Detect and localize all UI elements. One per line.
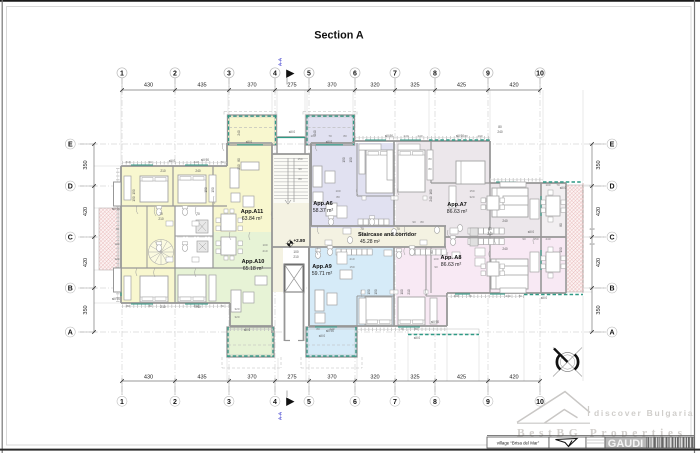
svg-text:240: 240 (497, 130, 503, 134)
svg-text:320: 320 (370, 375, 379, 381)
svg-text:80: 80 (237, 158, 241, 162)
svg-text:430: 430 (144, 375, 153, 381)
svg-text:sill 90: sill 90 (326, 329, 334, 333)
svg-text:240: 240 (195, 305, 201, 309)
svg-text:210: 210 (293, 255, 299, 259)
svg-text:1: 1 (120, 70, 124, 77)
svg-text:E: E (68, 142, 73, 149)
svg-text:160: 160 (429, 189, 433, 195)
svg-text:325: 325 (410, 83, 419, 89)
svg-text:240: 240 (403, 134, 408, 138)
svg-text:sill 90: sill 90 (112, 207, 120, 211)
svg-text:sill 0: sill 0 (246, 140, 253, 144)
svg-text:430: 430 (144, 83, 153, 89)
svg-text:100: 100 (433, 257, 438, 261)
svg-text:86.63 m²: 86.63 m² (447, 209, 468, 215)
svg-text:80: 80 (336, 195, 340, 199)
svg-text:58.37 m²: 58.37 m² (313, 208, 334, 214)
svg-text:80: 80 (430, 250, 434, 254)
svg-text:240: 240 (237, 130, 241, 136)
svg-text:150: 150 (469, 189, 474, 193)
svg-text:370: 370 (247, 83, 256, 89)
svg-text:150: 150 (533, 237, 538, 241)
svg-text:A-A: A-A (278, 57, 283, 66)
svg-text:9: 9 (486, 399, 490, 406)
svg-text:9: 9 (486, 70, 490, 77)
svg-text:8: 8 (433, 70, 437, 77)
svg-text:80: 80 (428, 157, 432, 161)
svg-text:sill 0: sill 0 (289, 130, 296, 134)
svg-text:80: 80 (559, 223, 563, 227)
svg-text:240: 240 (502, 247, 508, 251)
svg-text:8: 8 (433, 399, 437, 406)
svg-text:App.A10: App.A10 (242, 259, 265, 265)
svg-text:10: 10 (536, 70, 544, 77)
svg-text:86.63 m²: 86.63 m² (441, 262, 462, 268)
svg-text:2: 2 (173, 70, 177, 77)
svg-text:210: 210 (395, 232, 401, 236)
svg-text:370: 370 (247, 375, 256, 381)
svg-text:420: 420 (83, 207, 89, 216)
svg-text:150: 150 (349, 157, 353, 163)
svg-text:70: 70 (468, 294, 472, 298)
svg-text:80: 80 (420, 220, 424, 224)
svg-text:240: 240 (195, 169, 201, 173)
svg-text:275: 275 (287, 375, 296, 381)
svg-text:350: 350 (83, 160, 89, 169)
svg-text:A: A (609, 330, 614, 337)
svg-text:Staircase and corridor: Staircase and corridor (358, 232, 417, 238)
svg-text:240: 240 (429, 196, 433, 202)
svg-text:100: 100 (114, 242, 119, 246)
svg-text:240: 240 (502, 219, 508, 223)
svg-text:80: 80 (343, 134, 347, 138)
svg-text:sill 0: sill 0 (541, 296, 548, 300)
svg-text:C: C (609, 235, 614, 242)
svg-text:3: 3 (227, 70, 231, 77)
svg-text:70: 70 (196, 212, 200, 216)
svg-text:70: 70 (159, 212, 163, 216)
svg-text:4: 4 (273, 70, 277, 77)
svg-text:5: 5 (307, 399, 311, 406)
svg-text:C: C (68, 235, 73, 242)
svg-text:100: 100 (453, 294, 458, 298)
svg-text:10: 10 (536, 399, 544, 406)
svg-text:100: 100 (400, 289, 404, 295)
svg-text:150: 150 (204, 187, 208, 193)
svg-text:sill 0: sill 0 (319, 334, 326, 338)
svg-text:420: 420 (596, 207, 602, 216)
svg-text:70: 70 (328, 134, 332, 138)
svg-text:App.A11: App.A11 (241, 209, 263, 215)
svg-text:sill 0: sill 0 (414, 336, 421, 340)
svg-text:210: 210 (359, 232, 365, 236)
svg-text:B: B (68, 286, 73, 293)
svg-text:7: 7 (393, 70, 397, 77)
svg-text:150: 150 (559, 247, 563, 253)
svg-text:210: 210 (160, 305, 166, 309)
svg-text:D: D (68, 184, 73, 191)
svg-text:320: 320 (234, 307, 239, 311)
svg-text:425: 425 (457, 375, 466, 381)
svg-text:App.A7: App.A7 (447, 202, 467, 208)
svg-text:sill 0: sill 0 (528, 230, 535, 234)
svg-text:sill 0: sill 0 (326, 140, 333, 144)
svg-text:63.84 m²: 63.84 m² (242, 216, 263, 222)
svg-text:7: 7 (393, 399, 397, 406)
svg-text:discover Bulgaria: discover Bulgaria (594, 408, 694, 418)
svg-text:150: 150 (297, 157, 302, 161)
svg-text:App.A6: App.A6 (313, 201, 333, 207)
svg-text:435: 435 (197, 375, 206, 381)
svg-text:325: 325 (410, 375, 419, 381)
svg-text:90: 90 (434, 265, 438, 269)
svg-text:70: 70 (220, 304, 224, 308)
svg-text:GAUDI: GAUDI (608, 438, 643, 450)
svg-text:70: 70 (400, 327, 404, 331)
svg-text:435: 435 (197, 83, 206, 89)
svg-text:70: 70 (360, 227, 364, 231)
svg-text:80: 80 (498, 125, 502, 129)
svg-text:Section A: Section A (314, 30, 364, 42)
svg-text:150: 150 (349, 265, 354, 269)
svg-text:275: 275 (287, 83, 296, 89)
svg-text:sill 90: sill 90 (385, 134, 393, 138)
svg-text:150: 150 (132, 189, 136, 195)
svg-text:210: 210 (349, 257, 354, 261)
svg-text:210: 210 (262, 249, 267, 253)
svg-text:6: 6 (353, 399, 357, 406)
svg-text:100: 100 (262, 243, 267, 247)
svg-text:90: 90 (412, 220, 416, 224)
svg-text:1: 1 (120, 399, 124, 406)
svg-text:210: 210 (407, 289, 411, 295)
svg-text:A: A (68, 330, 73, 337)
svg-text:5: 5 (307, 70, 311, 77)
svg-text:80: 80 (414, 327, 418, 331)
svg-text:100: 100 (545, 183, 550, 187)
svg-text:320: 320 (370, 83, 379, 89)
svg-text:sill 0: sill 0 (169, 159, 176, 163)
svg-text:150: 150 (367, 289, 371, 295)
svg-text:420: 420 (509, 83, 518, 89)
svg-text:240: 240 (193, 160, 198, 164)
svg-text:100: 100 (477, 134, 482, 138)
svg-text:350: 350 (596, 160, 602, 169)
svg-text:3: 3 (227, 399, 231, 406)
svg-text:240: 240 (417, 134, 422, 138)
svg-text:90: 90 (522, 237, 526, 241)
svg-text:425: 425 (457, 83, 466, 89)
svg-text:70: 70 (518, 294, 522, 298)
svg-text:sill 90: sill 90 (201, 158, 209, 162)
svg-text:370: 370 (327, 83, 336, 89)
svg-text:150: 150 (374, 289, 378, 295)
svg-text:sill 90: sill 90 (456, 134, 464, 138)
svg-text:70: 70 (396, 227, 400, 231)
svg-text:App. A8: App. A8 (441, 255, 462, 261)
svg-text:village “Brisa del Mar”: village “Brisa del Mar” (497, 441, 540, 446)
svg-text:210: 210 (160, 169, 166, 173)
svg-text:E: E (610, 142, 615, 149)
svg-text:420: 420 (83, 258, 89, 267)
svg-text:+2.80: +2.80 (294, 238, 306, 243)
svg-text:320: 320 (114, 257, 119, 261)
svg-text:240: 240 (313, 130, 317, 136)
svg-text:B: B (609, 286, 614, 293)
svg-text:150: 150 (132, 196, 136, 202)
svg-text:D: D (609, 184, 614, 191)
svg-text:80: 80 (126, 304, 130, 308)
svg-text:210: 210 (125, 160, 130, 164)
svg-text:sill 0: sill 0 (560, 186, 567, 190)
svg-text:350: 350 (83, 305, 89, 314)
svg-text:150: 150 (211, 187, 215, 193)
svg-text:80: 80 (298, 177, 302, 181)
svg-text:App.A9: App.A9 (312, 264, 332, 270)
svg-text:65.18 m²: 65.18 m² (243, 266, 264, 272)
svg-text:420: 420 (596, 258, 602, 267)
svg-text:90: 90 (298, 167, 302, 171)
svg-text:420: 420 (509, 375, 518, 381)
svg-text:sill 90: sill 90 (431, 320, 439, 324)
svg-text:100: 100 (293, 250, 299, 254)
svg-text:A-A: A-A (278, 411, 283, 420)
svg-text:59.71 m²: 59.71 m² (312, 271, 333, 277)
svg-text:370: 370 (327, 375, 336, 381)
svg-text:4: 4 (273, 399, 277, 406)
svg-text:240: 240 (545, 237, 550, 241)
svg-text:210: 210 (237, 164, 241, 170)
svg-text:320: 320 (234, 315, 239, 319)
svg-text:sill 90: sill 90 (112, 297, 120, 301)
svg-text:80: 80 (148, 304, 152, 308)
svg-text:90: 90 (148, 160, 152, 164)
svg-text:350: 350 (596, 305, 602, 314)
svg-text:80: 80 (316, 327, 320, 331)
svg-text:80: 80 (488, 227, 492, 231)
svg-text:70: 70 (115, 227, 119, 231)
svg-text:2: 2 (173, 399, 177, 406)
svg-text:80: 80 (428, 167, 432, 171)
svg-text:210: 210 (158, 217, 164, 221)
svg-text:45.28 m²: 45.28 m² (360, 239, 380, 245)
svg-text:70: 70 (220, 160, 224, 164)
svg-text:6: 6 (353, 70, 357, 77)
svg-text:100: 100 (335, 189, 340, 193)
svg-text:320: 320 (469, 195, 474, 199)
svg-text:150: 150 (342, 157, 346, 163)
svg-text:240: 240 (487, 232, 493, 236)
svg-text:240: 240 (505, 294, 510, 298)
svg-text:80: 80 (464, 134, 468, 138)
svg-text:sill 0: sill 0 (244, 328, 251, 332)
